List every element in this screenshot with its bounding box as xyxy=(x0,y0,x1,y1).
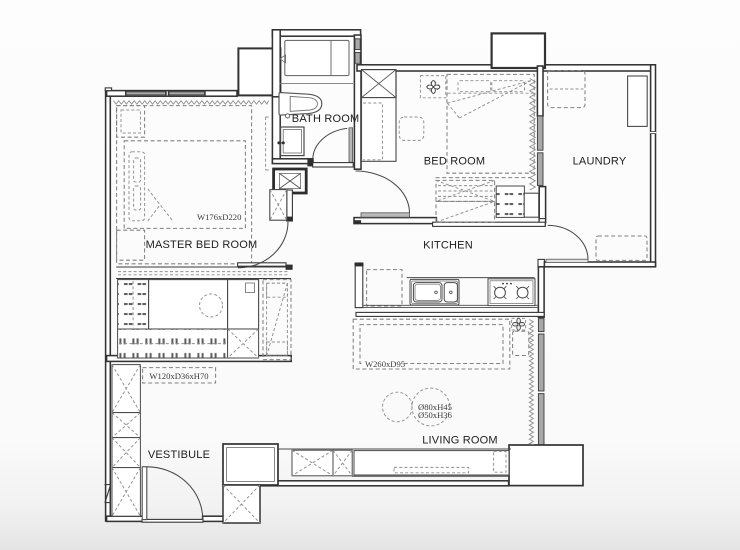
svg-text:W260xD95: W260xD95 xyxy=(365,359,405,369)
svg-text:LIVING ROOM: LIVING ROOM xyxy=(422,434,498,446)
svg-text:Ø50xH36: Ø50xH36 xyxy=(418,410,453,420)
svg-text:VESTIBULE: VESTIBULE xyxy=(148,449,210,461)
svg-text:BED ROOM: BED ROOM xyxy=(424,155,486,167)
svg-text:MASTER BED ROOM: MASTER BED ROOM xyxy=(146,239,258,251)
svg-text:BATH ROOM: BATH ROOM xyxy=(292,113,360,125)
svg-text:KITCHEN: KITCHEN xyxy=(423,240,473,252)
svg-text:LAUNDRY: LAUNDRY xyxy=(573,155,627,167)
svg-text:W176xD220: W176xD220 xyxy=(197,212,241,222)
svg-text:W120xD36xH70: W120xD36xH70 xyxy=(149,371,208,381)
